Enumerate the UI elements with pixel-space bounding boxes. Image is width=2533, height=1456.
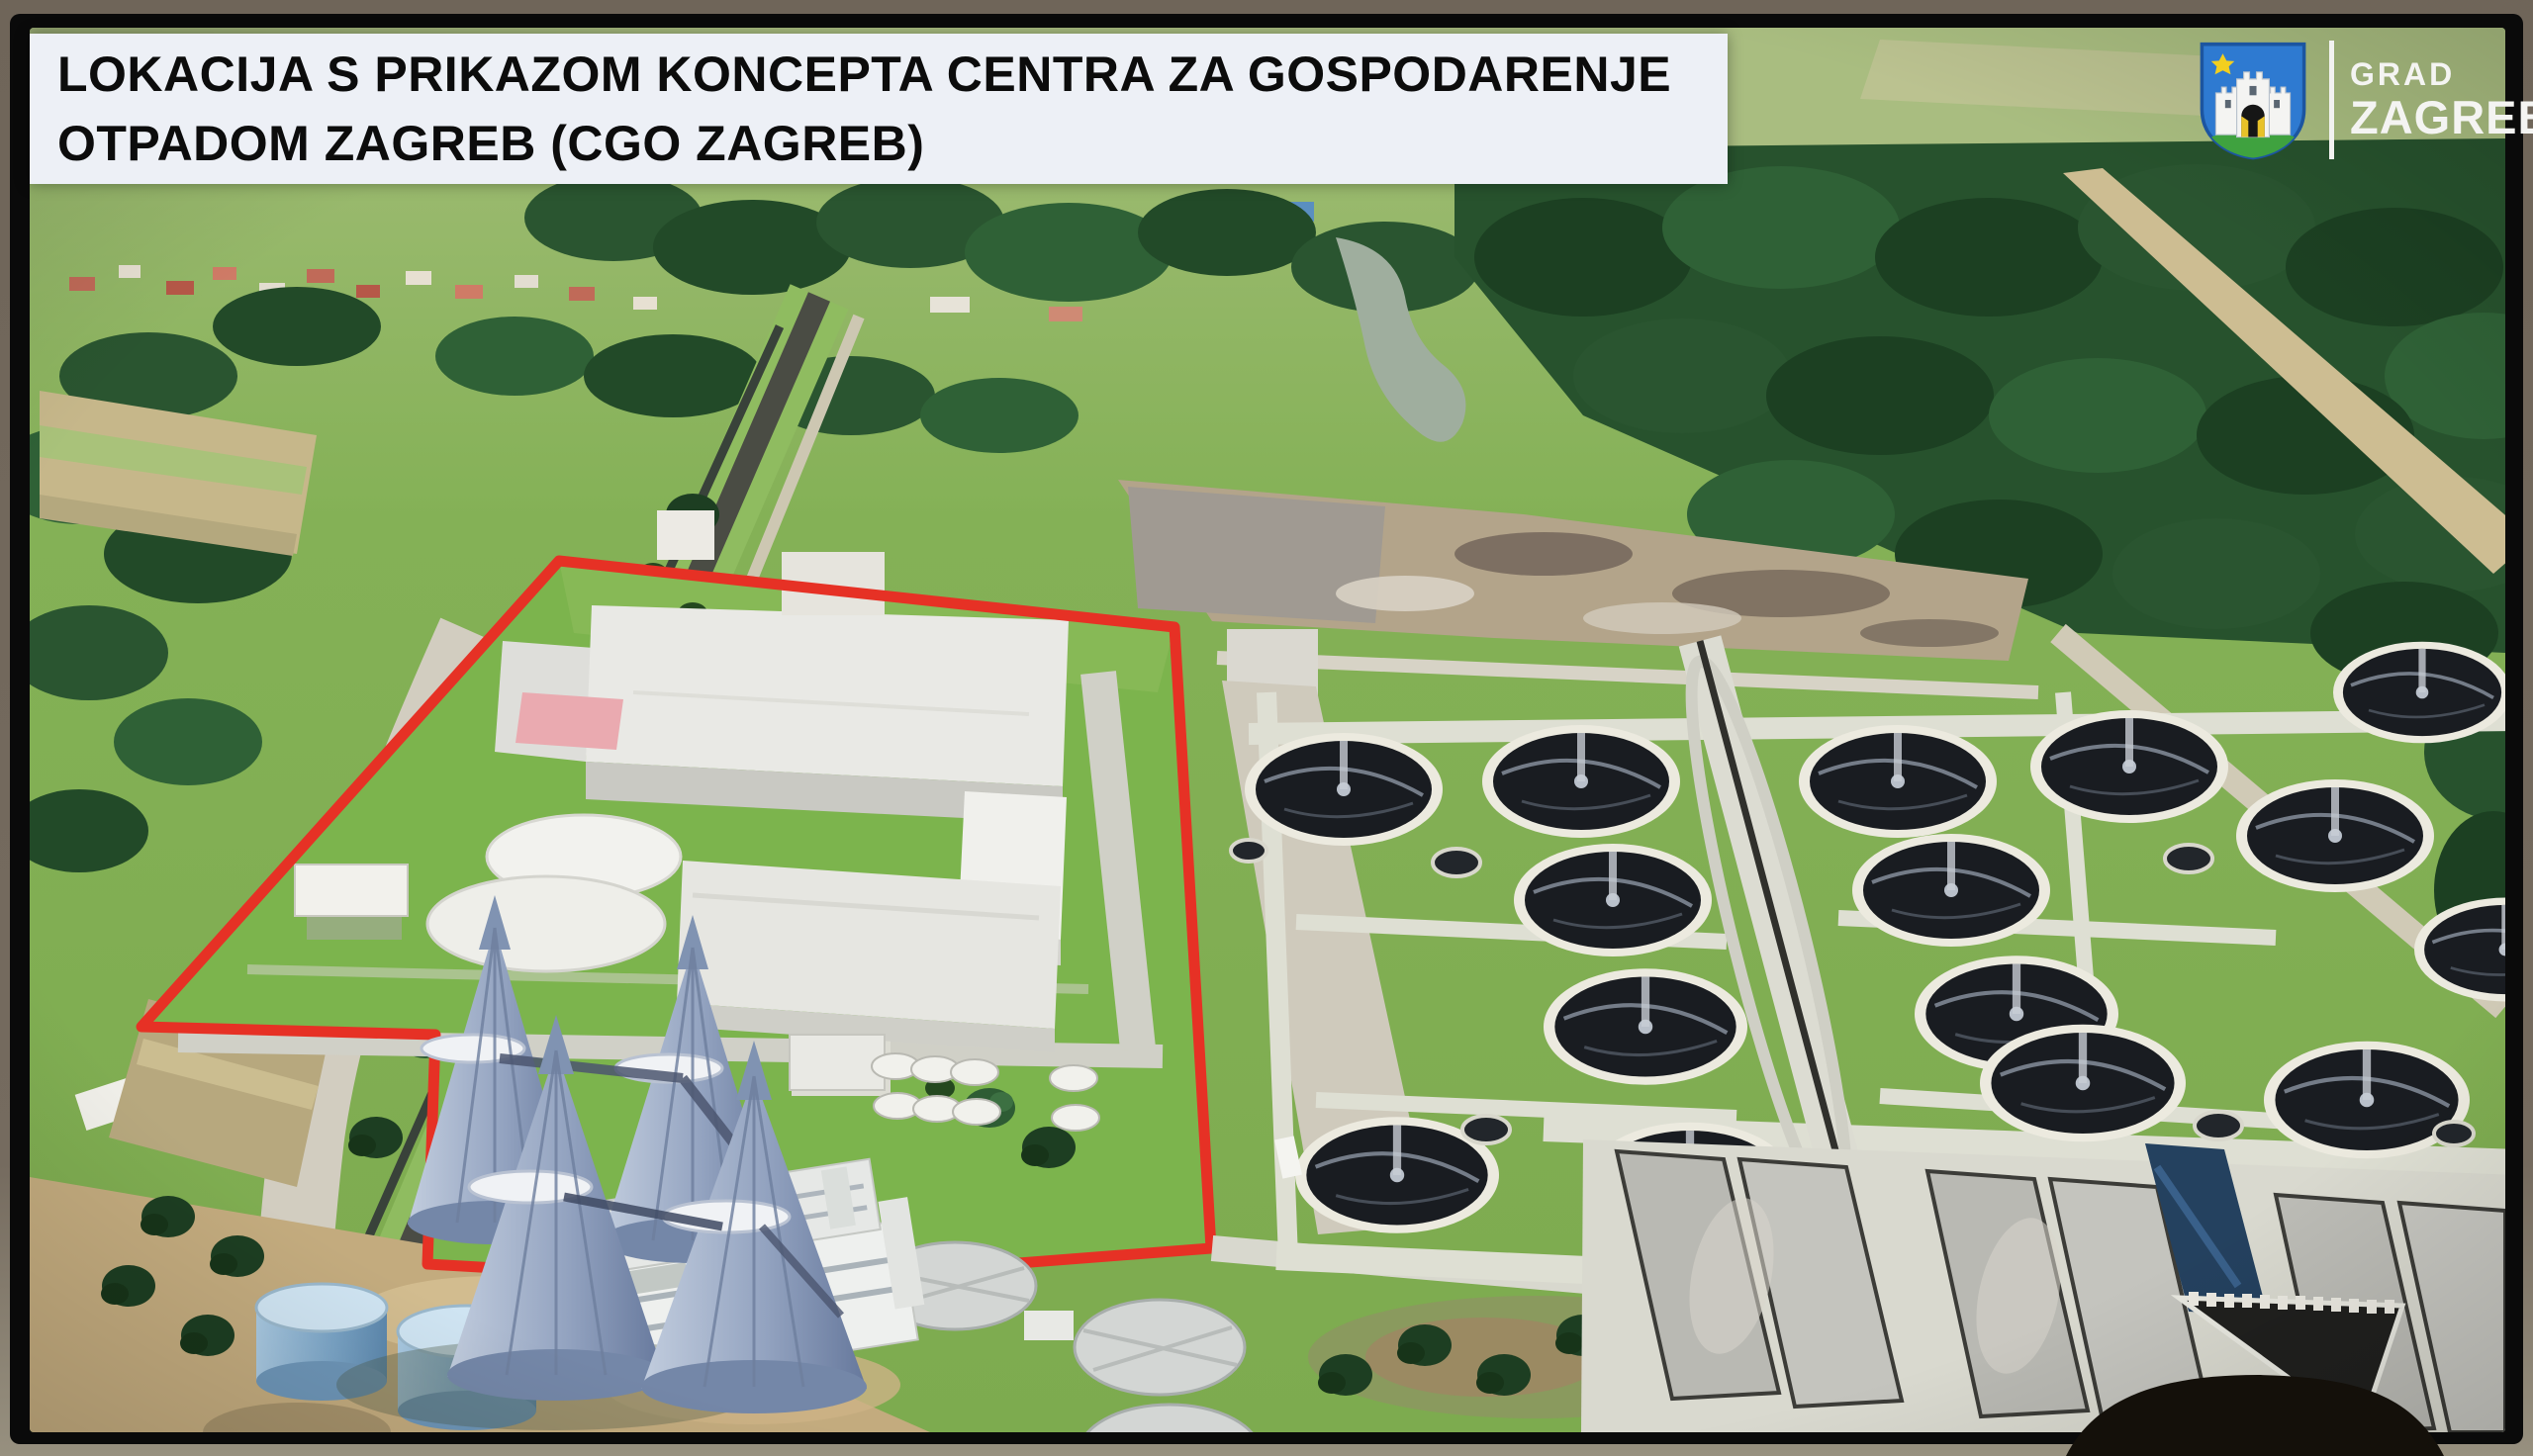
photo-of-presentation-screen: LOKACIJA S PRIKAZOM KONCEPTA CENTRA ZA G… — [0, 0, 2533, 1456]
logo-divider — [2329, 41, 2334, 159]
city-of-zagreb-logo: GRAD ZAGREB — [2193, 40, 2533, 160]
zagreb-coat-of-arms-icon — [2193, 40, 2313, 160]
aerial-scene — [0, 28, 2533, 1456]
slide-title-line1: LOKACIJA S PRIKAZOM KONCEPTA CENTRA ZA G… — [57, 40, 1728, 109]
aerial-rendering — [0, 0, 2533, 1456]
logo-text-zagreb: ZAGREB — [2350, 92, 2533, 143]
slide-title-banner: LOKACIJA S PRIKAZOM KONCEPTA CENTRA ZA G… — [30, 34, 1728, 184]
logo-text-grad: GRAD — [2350, 56, 2533, 92]
slide-title-line2: OTPADOM ZAGREB (CGO ZAGREB) — [57, 109, 1728, 178]
